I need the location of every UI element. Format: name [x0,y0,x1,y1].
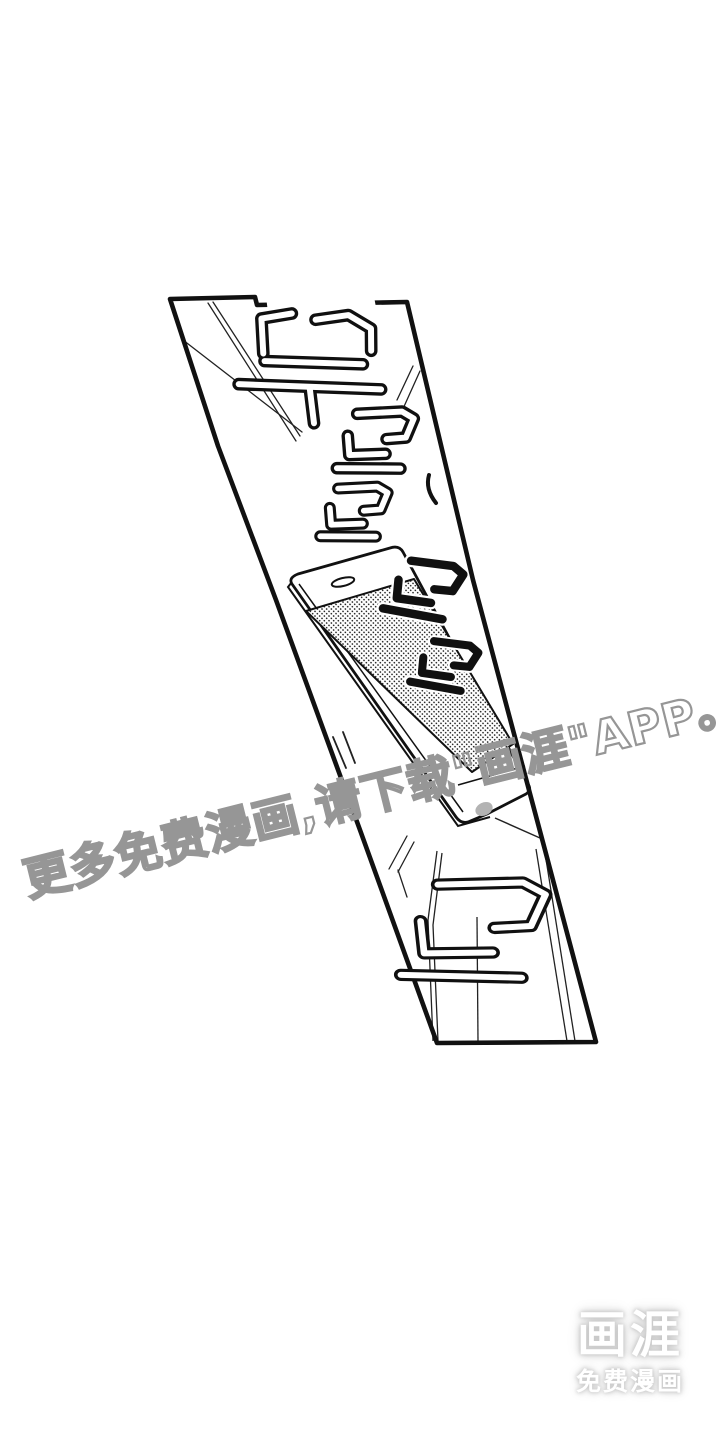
logo-title: 画涯 [558,1308,702,1363]
webtoon-page: 更多免费漫画,请下载"画涯"APP。 画涯 免费漫画 [0,0,720,1440]
logo-subtitle: 免费漫画 [558,1368,702,1396]
app-logo: 画涯 免费漫画 [558,1308,702,1396]
